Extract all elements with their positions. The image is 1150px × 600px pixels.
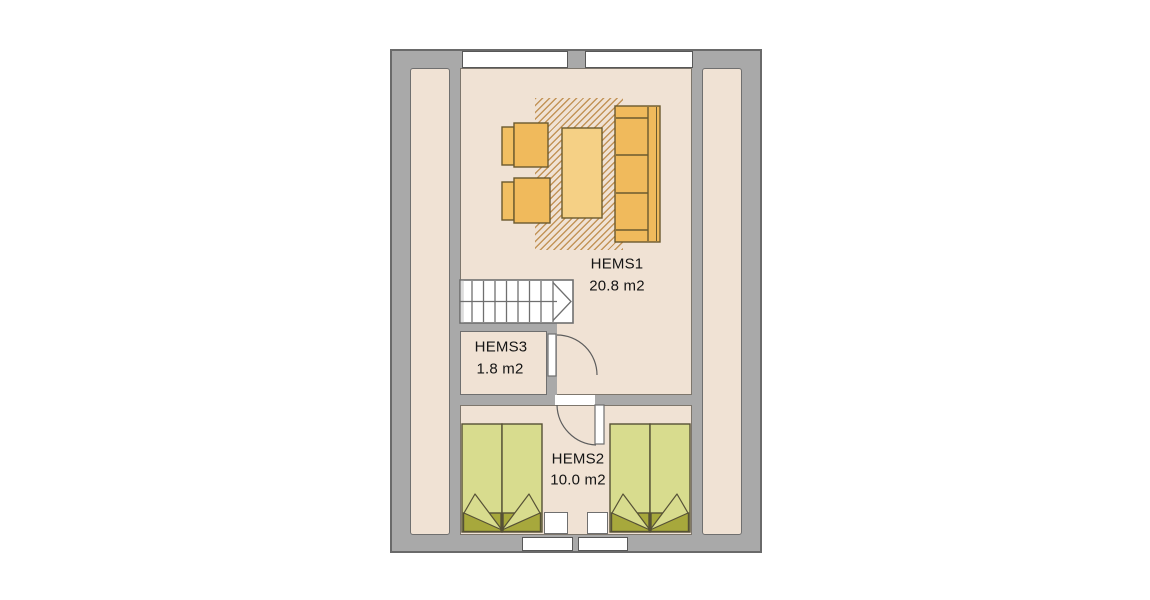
wall-segment-hems3 [547, 331, 557, 405]
room-label-hems1: HEMS1 [591, 256, 644, 273]
room-area-hems3: 1.8 m2 [476, 361, 523, 378]
window-top-right-icon [585, 51, 693, 68]
rug-icon [535, 98, 623, 250]
nightstand-right-icon [587, 512, 608, 534]
window-bottom-left-icon [522, 537, 573, 551]
floor-plan: HEMS1 20.8 m2 HEMS3 1.8 m2 HEMS2 10.0 m2 [390, 49, 762, 553]
wall-segment [450, 323, 557, 331]
floor-plan-canvas: HEMS1 20.8 m2 HEMS3 1.8 m2 HEMS2 10.0 m2 [0, 0, 1150, 600]
nightstand-left-icon [544, 512, 568, 534]
window-bottom-right-icon [578, 537, 628, 551]
room-area-hems1: 20.8 m2 [589, 278, 645, 295]
room-area-hems2: 10.0 m2 [550, 472, 606, 489]
attic-strip-left [410, 68, 450, 535]
room-label-hems3: HEMS3 [475, 339, 528, 356]
door-opening-hems2 [555, 395, 595, 405]
room-hems2-floor [460, 405, 692, 535]
window-top-left-icon [462, 51, 568, 68]
room-label-hems2: HEMS2 [552, 451, 605, 468]
attic-strip-right [702, 68, 742, 535]
